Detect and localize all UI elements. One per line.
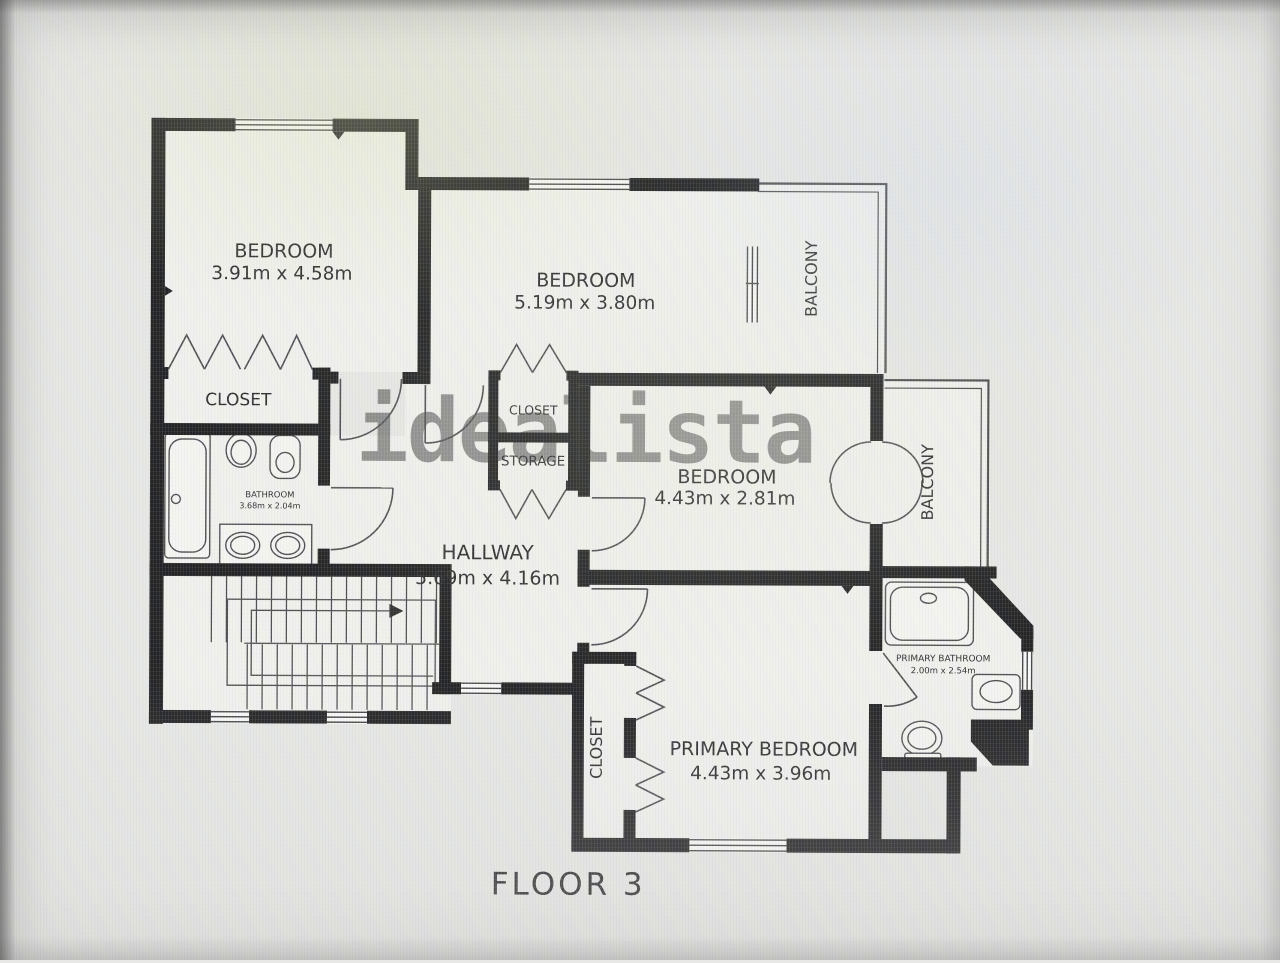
- room-label-storage: STORAGE: [501, 453, 565, 469]
- room-dims-primary-bedroom: 4.43m x 3.96m: [690, 763, 831, 785]
- room-label-primary-bedroom: PRIMARY BEDROOM: [670, 738, 859, 761]
- room-dims-hallway: 5.69m x 4.16m: [415, 567, 560, 590]
- room-label-balcony-right: BALCONY: [918, 444, 937, 521]
- room-dims-primary-bathroom: 2.00m x 2.54m: [911, 666, 976, 676]
- window-primary-bedroom: [689, 838, 786, 852]
- room-label-closet-primary: CLOSET: [587, 716, 606, 778]
- floor-plan-drawing: idealista: [0, 0, 1280, 963]
- room-dims-bathroom: 3.68m x 2.04m: [239, 501, 300, 510]
- room-label-bedroom-middle-right: BEDROOM: [677, 466, 776, 488]
- window-stairs-right: [327, 711, 367, 724]
- double-sink-vanity: [220, 524, 312, 566]
- window-stairs-left: [211, 710, 249, 723]
- window-hallway: [461, 682, 501, 694]
- room-fill-closet-top-left: [150, 328, 330, 436]
- primary-sink: [972, 674, 1020, 709]
- floor-plan-photo: { "watermark": "idealista", "floor_label…: [0, 0, 1280, 960]
- window-bedroom-top-middle: [529, 178, 629, 191]
- window-primary-bathroom: [1021, 652, 1033, 690]
- room-label-primary-bathroom: PRIMARY BATHROOM: [896, 654, 990, 664]
- room-dims-bedroom-top-middle: 5.19m x 3.80m: [514, 292, 655, 314]
- room-dims-bedroom-top-left: 3.91m x 4.58m: [211, 263, 352, 285]
- floor-label: FLOOR 3: [491, 866, 646, 903]
- room-label-bedroom-top-left: BEDROOM: [234, 240, 333, 262]
- room-dims-bedroom-middle-right: 4.43m x 2.81m: [654, 488, 795, 510]
- room-fill-primary-bedroom: [571, 565, 882, 853]
- slider-balcony-top: [746, 246, 759, 322]
- room-fill-balcony-top: [758, 183, 887, 375]
- room-label-balcony-top: BALCONY: [802, 240, 821, 317]
- bidet: [270, 435, 300, 478]
- window-bedroom-top-left: [236, 118, 333, 131]
- room-label-closet-top-left: CLOSET: [205, 390, 272, 410]
- room-label-bedroom-top-middle: BEDROOM: [536, 270, 635, 292]
- room-label-bathroom: BATHROOM: [245, 490, 294, 500]
- toilet: [226, 433, 256, 467]
- floor-plan: idealista: [0, 0, 1280, 963]
- primary-bathtub: [885, 582, 973, 645]
- room-label-closet-middle: CLOSET: [509, 402, 558, 417]
- room-label-hallway: HALLWAY: [442, 540, 535, 564]
- bathtub: [165, 433, 211, 558]
